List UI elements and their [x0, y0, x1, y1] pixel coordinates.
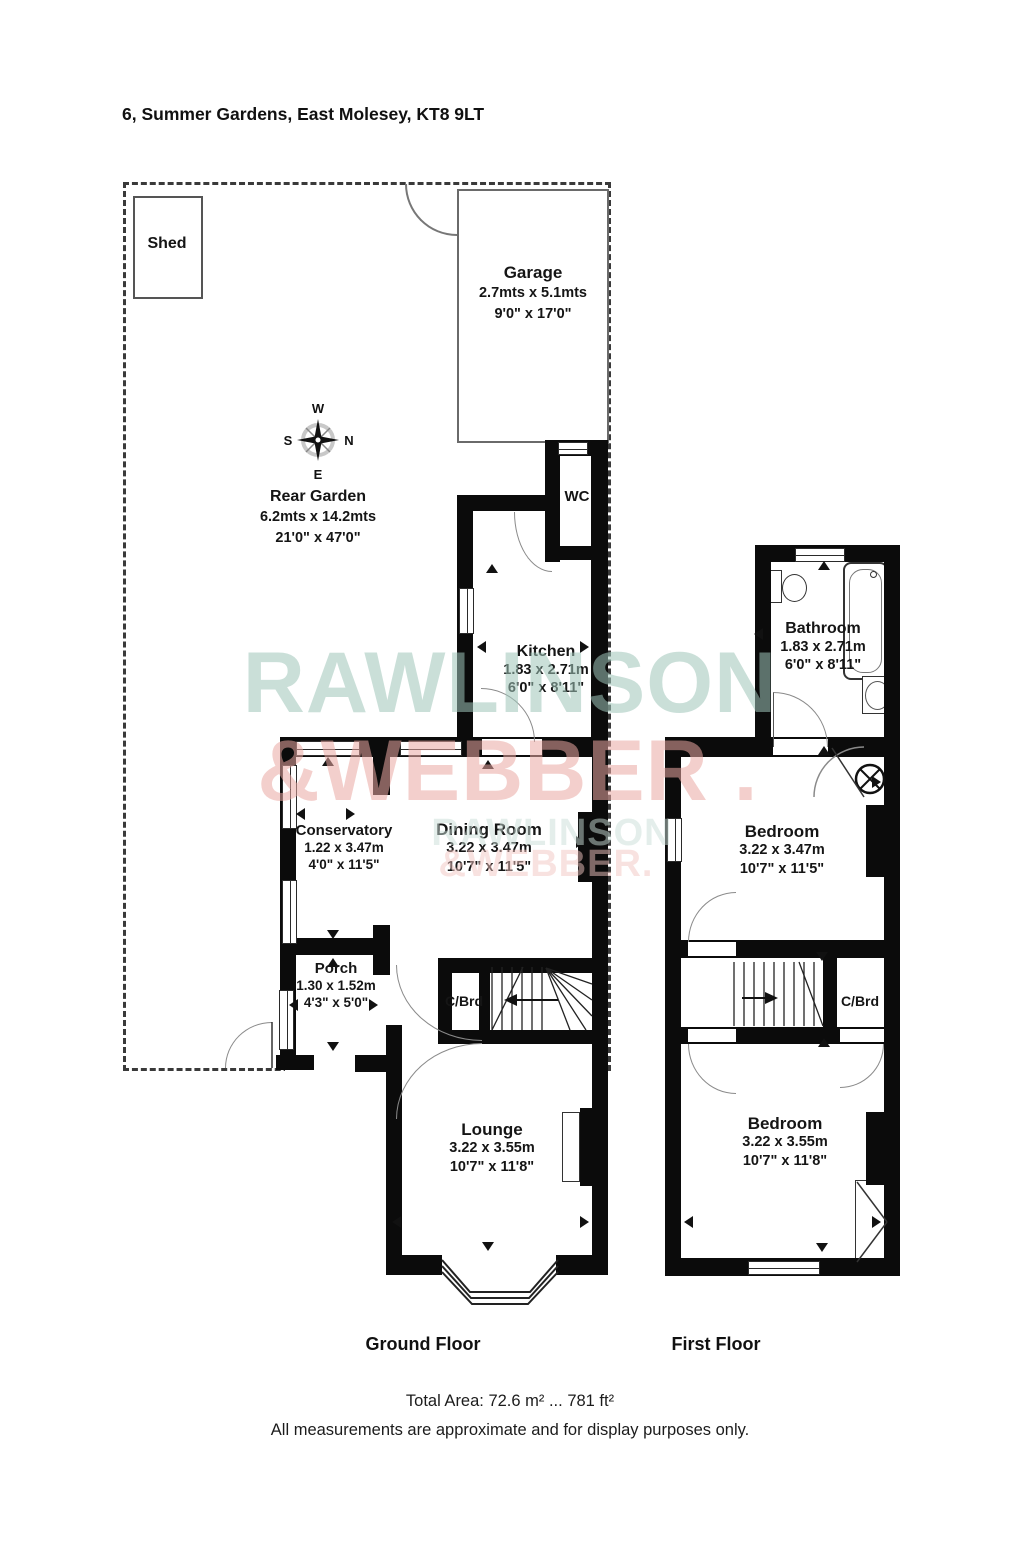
bedroom-two-metric: 3.22 x 3.55m: [742, 1133, 827, 1152]
dimension-arrow: [580, 1216, 589, 1228]
dimension-arrow: [346, 808, 355, 820]
porch-imperial: 4'3" x 5'0": [296, 994, 376, 1011]
rear-garden-metric: 6.2mts x 14.2mts: [260, 507, 376, 528]
room-label-rear-garden: Rear Garden: [260, 486, 376, 507]
bathroom-metric: 1.83 x 2.71m: [780, 638, 865, 656]
dining-room-metric: 3.22 x 3.47m: [436, 839, 542, 858]
room-label-shed: Shed: [147, 235, 186, 252]
dimension-arrow: [296, 808, 305, 820]
floor-label-first: First Floor: [672, 1334, 761, 1355]
dimension-arrow: [818, 1038, 830, 1047]
dimension-arrow: [818, 561, 830, 570]
floor-label-ground: Ground Floor: [366, 1334, 481, 1355]
lounge-metric: 3.22 x 3.55m: [449, 1139, 534, 1158]
room-label-cupboard-ground: C/Brd: [445, 993, 483, 1009]
dimension-arrow: [327, 1042, 339, 1051]
room-label-bedroom-two: Bedroom: [742, 1114, 827, 1133]
dimension-arrow: [327, 930, 339, 939]
room-label-lounge: Lounge: [449, 1120, 534, 1139]
bathroom-imperial: 6'0" x 8'11": [780, 656, 865, 674]
dimension-arrow: [754, 628, 763, 640]
dimension-arrow: [392, 1216, 401, 1228]
garage-metric: 2.7mts x 5.1mts: [479, 283, 587, 304]
conservatory-metric: 1.22 x 3.47m: [296, 839, 393, 856]
bedroom-one-metric: 3.22 x 3.47m: [739, 841, 824, 860]
dimension-arrow: [816, 952, 828, 961]
plan-linework: [0, 0, 1020, 1549]
dimension-arrow: [816, 1243, 828, 1252]
conservatory-imperial: 4'0" x 11'5": [296, 856, 393, 873]
rear-garden-imperial: 21'0" x 47'0": [260, 528, 376, 549]
dimension-arrow: [872, 1216, 881, 1228]
room-label-conservatory: Conservatory: [296, 822, 393, 839]
total-area-text: Total Area: 72.6 m² ... 781 ft²: [0, 1392, 1020, 1411]
dimension-arrow: [486, 564, 498, 573]
porch-metric: 1.30 x 1.52m: [296, 977, 376, 994]
lounge-imperial: 10'7" x 11'8": [449, 1158, 534, 1177]
kitchen-metric: 1.83 x 2.71m: [503, 661, 588, 679]
room-label-bedroom-one: Bedroom: [739, 822, 824, 841]
room-label-porch: Porch: [296, 960, 376, 977]
kitchen-imperial: 6'0" x 8'11": [503, 679, 588, 697]
floorplan-page: 6, Summer Gardens, East Molesey, KT8 9LT…: [0, 0, 1020, 1549]
room-label-wc: WC: [565, 488, 590, 505]
dimension-arrow: [684, 1216, 693, 1228]
dimension-arrow: [482, 1242, 494, 1251]
dimension-arrow: [322, 757, 334, 766]
room-label-bathroom: Bathroom: [780, 620, 865, 638]
room-label-kitchen: Kitchen: [503, 643, 588, 661]
room-label-garage: Garage: [479, 262, 587, 283]
dimension-arrow: [576, 836, 585, 848]
dimension-arrow: [482, 760, 494, 769]
dimension-arrow: [872, 776, 881, 788]
room-label-cupboard-first: C/Brd: [841, 993, 879, 1009]
dining-room-imperial: 10'7" x 11'5": [436, 858, 542, 877]
garage-imperial: 9'0" x 17'0": [479, 304, 587, 325]
disclaimer-text: All measurements are approximate and for…: [0, 1421, 1020, 1440]
dimension-arrow: [818, 746, 830, 755]
bedroom-two-imperial: 10'7" x 11'8": [742, 1152, 827, 1171]
dimension-arrow: [477, 641, 486, 653]
bedroom-one-imperial: 10'7" x 11'5": [739, 860, 824, 879]
room-label-dining-room: Dining Room: [436, 820, 542, 839]
